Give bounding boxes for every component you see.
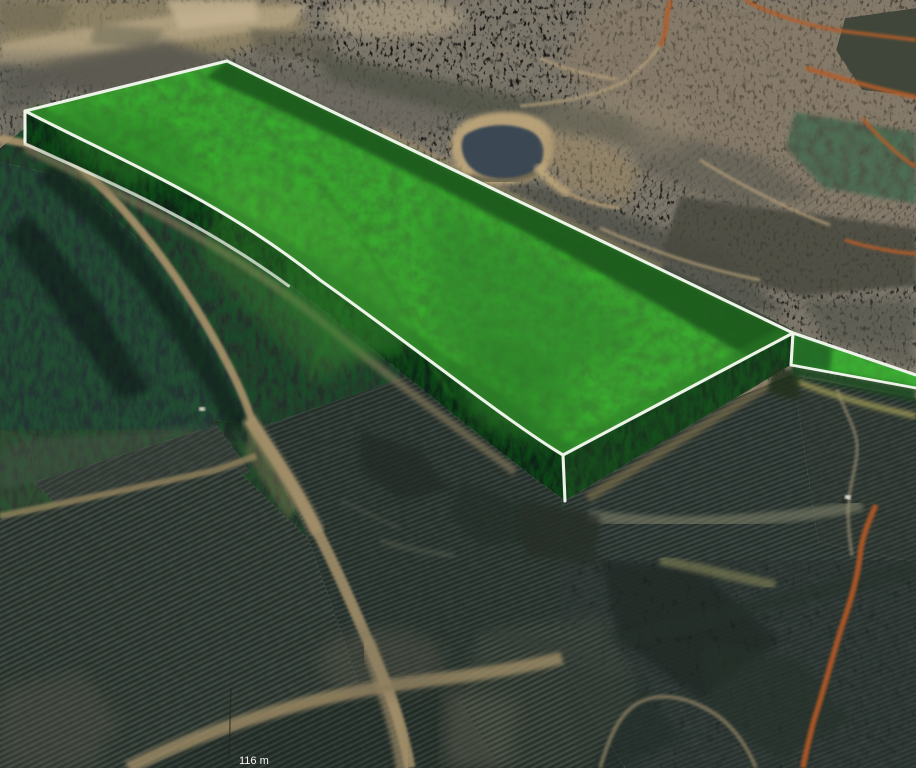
svg-text:116 m: 116 m (239, 755, 269, 767)
